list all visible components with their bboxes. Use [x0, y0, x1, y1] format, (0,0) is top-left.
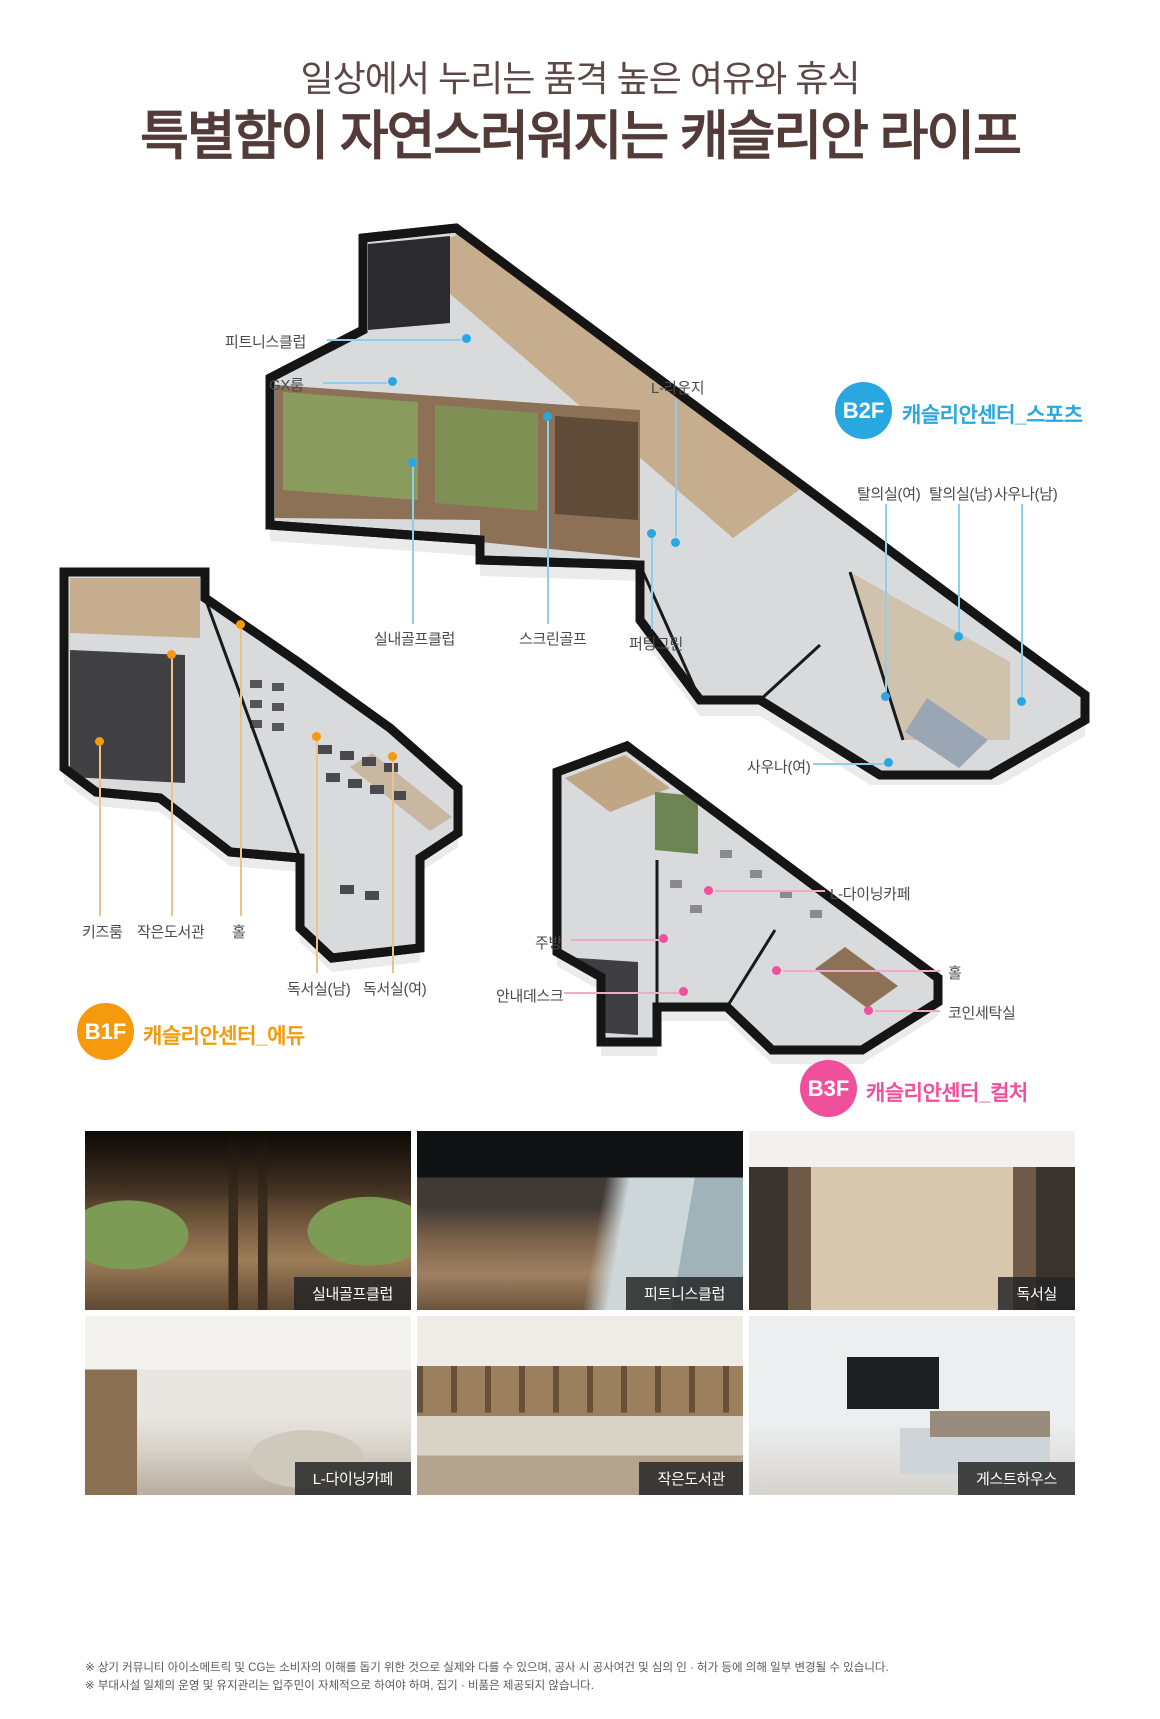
callout-b3f-hall-dot: [772, 966, 781, 975]
callout-indoor-golf-line: [412, 466, 414, 624]
callout-reading-men-line: [316, 740, 318, 973]
callout-laundry-dot: [864, 1006, 873, 1015]
photo-small-library: 작은도서관: [417, 1316, 743, 1495]
poster-page: 일상에서 누리는 품격 높은 여유와 휴식 특별함이 자연스러워지는 캐슬리안 …: [0, 0, 1160, 1719]
b1f-badge: B1F: [77, 1003, 134, 1060]
b1f-floor-plan-image: [50, 555, 470, 980]
b3f-floor-name: 캐슬리안센터_컬처: [866, 1077, 1028, 1107]
callout-b1f-hall-label: 홀: [232, 921, 246, 942]
callout-kitchen-line: [571, 939, 661, 941]
photo-reading-room: 독서실: [749, 1131, 1075, 1310]
photo-caption: L-다이닝카페: [295, 1462, 411, 1495]
disclaimer: ※ 상기 커뮤니티 아이소메트릭 및 CG는 소비자의 이해를 돕기 위한 것으…: [85, 1660, 889, 1696]
callout-l-lounge-dot: [671, 538, 680, 547]
callout-b1f-hall-line: [240, 628, 242, 916]
callout-info-desk-line: [564, 992, 681, 994]
b3f-badge: B3F: [800, 1060, 857, 1117]
callout-locker-women-label: 탈의실(여): [857, 483, 920, 504]
callout-dining-cafe-line: [715, 890, 825, 892]
callout-dining-cafe-dot: [704, 886, 713, 895]
callout-screen-golf-dot: [543, 412, 552, 421]
callout-fitness-club-dot: [462, 334, 471, 343]
page-title: 특별함이 자연스러워지는 캐슬리안 라이프: [0, 94, 1160, 170]
callout-gx-room-dot: [388, 377, 397, 386]
callout-dining-cafe-label: L-다이닝카페: [830, 883, 910, 904]
callout-sauna-women-label: 사우나(여): [747, 756, 810, 777]
callout-kids-room-label: 키즈룸: [82, 921, 123, 942]
photo-caption: 피트니스클럽: [626, 1277, 743, 1310]
callout-gx-room-label: GX룸: [269, 374, 304, 395]
callout-small-library-label: 작은도서관: [137, 921, 205, 942]
callout-putting-green-label: 퍼팅그린: [629, 633, 683, 654]
callout-info-desk-dot: [679, 987, 688, 996]
callout-fitness-club-line: [327, 339, 461, 341]
callout-fitness-club-label: 피트니스클럽: [225, 331, 306, 352]
callout-reading-men-dot: [312, 732, 321, 741]
callout-laundry-line: [875, 1010, 940, 1012]
callout-small-library-dot: [167, 650, 176, 659]
callout-l-lounge-line: [675, 399, 677, 537]
callout-b1f-hall-dot: [236, 620, 245, 629]
callout-putting-green-line: [651, 537, 653, 629]
photo-indoor-golf: 실내골프클럽: [85, 1131, 411, 1310]
callout-gx-room-line: [323, 382, 387, 384]
callout-locker-men-line: [958, 504, 960, 632]
callout-kids-room-line: [99, 745, 101, 916]
callout-b3f-hall-line: [783, 970, 940, 972]
callout-kitchen-label: 주방: [535, 932, 562, 953]
b2f-badge: B2F: [835, 382, 892, 439]
facility-photo-grid: 실내골프클럽 피트니스클럽 독서실 L-다이닝카페 작은도서관 게스트하우스: [85, 1131, 1075, 1495]
photo-caption: 작은도서관: [639, 1462, 743, 1495]
callout-sauna-men-label: 사우나(남): [994, 483, 1057, 504]
callout-small-library-line: [171, 658, 173, 916]
b1f-floor-name: 캐슬리안센터_에듀: [143, 1020, 305, 1050]
photo-fitness-club: 피트니스클럽: [417, 1131, 743, 1310]
disclaimer-line-2: ※ 부대시설 일체의 운영 및 유지관리는 입주민이 자체적으로 하여야 하며,…: [85, 1678, 889, 1696]
callout-indoor-golf-dot: [408, 458, 417, 467]
photo-guesthouse: 게스트하우스: [749, 1316, 1075, 1495]
callout-locker-men-label: 탈의실(남): [929, 483, 992, 504]
photo-caption: 실내골프클럽: [294, 1277, 411, 1310]
callout-b3f-hall-label: 홀: [948, 962, 962, 983]
callout-indoor-golf-label: 실내골프클럽: [374, 628, 455, 649]
photo-dining-cafe: L-다이닝카페: [85, 1316, 411, 1495]
callout-reading-women-label: 독서실(여): [363, 978, 426, 999]
callout-sauna-women-dot: [884, 758, 893, 767]
callout-reading-women-line: [392, 760, 394, 973]
callout-sauna-men-dot: [1017, 697, 1026, 706]
callout-kitchen-dot: [659, 934, 668, 943]
callout-reading-men-label: 독서실(남): [287, 978, 350, 999]
callout-info-desk-label: 안내데스크: [496, 985, 564, 1006]
callout-locker-men-dot: [954, 632, 963, 641]
b2f-floor-name: 캐슬리안센터_스포츠: [902, 399, 1083, 429]
callout-kids-room-dot: [95, 737, 104, 746]
photo-caption: 게스트하우스: [958, 1462, 1075, 1495]
callout-locker-women-dot: [881, 692, 890, 701]
callout-sauna-men-line: [1021, 504, 1023, 697]
callout-sauna-women-line: [813, 763, 885, 765]
callout-screen-golf-label: 스크린골프: [519, 628, 587, 649]
callout-putting-green-dot: [647, 529, 656, 538]
callout-l-lounge-label: L-라운지: [651, 377, 704, 398]
callout-locker-women-line: [885, 504, 887, 692]
disclaimer-line-1: ※ 상기 커뮤니티 아이소메트릭 및 CG는 소비자의 이해를 돕기 위한 것으…: [85, 1660, 889, 1678]
callout-screen-golf-line: [547, 420, 549, 624]
photo-caption: 독서실: [998, 1277, 1075, 1310]
callout-laundry-label: 코인세탁실: [948, 1002, 1016, 1023]
callout-reading-women-dot: [388, 752, 397, 761]
